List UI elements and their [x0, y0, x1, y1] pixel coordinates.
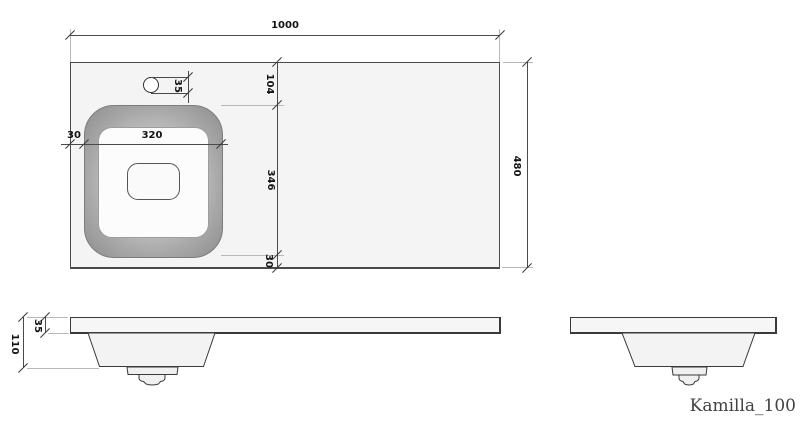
drain-outline-top-view — [127, 163, 180, 200]
dimension-line-overall-depth — [527, 62, 528, 268]
dim-label-basin-offset-left: 30 — [67, 131, 81, 141]
dim-label-total-height: 110 — [9, 334, 19, 355]
technical-drawing-canvas: 1000 480 104 346 30 30 320 35 — [0, 0, 800, 426]
faucet-dim-leader-top — [151, 77, 188, 78]
drain-flange-front — [127, 367, 178, 375]
drain-flange-side — [672, 367, 707, 375]
countertop-slab-side — [570, 317, 777, 334]
basin-bowl-front — [88, 333, 215, 367]
faucet-hole — [143, 77, 159, 93]
dim-label-basin-offset-bottom: 30 — [263, 254, 273, 268]
countertop-slab-front — [70, 317, 501, 334]
drain-fitting-front — [139, 375, 165, 386]
dimension-line-overall-width — [70, 35, 500, 36]
extension-line — [27, 317, 68, 318]
extension-line — [48, 333, 69, 334]
faucet-dim-leader-bottom — [151, 93, 188, 94]
basin-bowl-side — [622, 333, 755, 367]
dim-label-overall-width: 1000 — [271, 21, 299, 31]
dimension-line-total-height — [23, 317, 24, 368]
extension-line — [503, 62, 533, 63]
dim-label-basin-width: 320 — [142, 131, 163, 141]
dimension-line-basin-width — [61, 144, 228, 145]
dim-label-basin-length: 346 — [265, 170, 275, 191]
drain-fitting-side — [679, 375, 699, 385]
extension-line — [27, 368, 99, 369]
drawing-title: Kamilla_100 — [660, 396, 796, 416]
dim-label-slab-thickness: 35 — [32, 319, 42, 333]
dim-label-basin-offset-top: 104 — [264, 74, 274, 95]
dim-label-overall-depth: 480 — [511, 156, 521, 177]
basin-profile-side — [618, 333, 760, 389]
basin-profile-front — [85, 333, 220, 389]
dimension-line-basin-chain — [277, 62, 278, 268]
dim-label-faucet-hole: 35 — [172, 79, 182, 93]
